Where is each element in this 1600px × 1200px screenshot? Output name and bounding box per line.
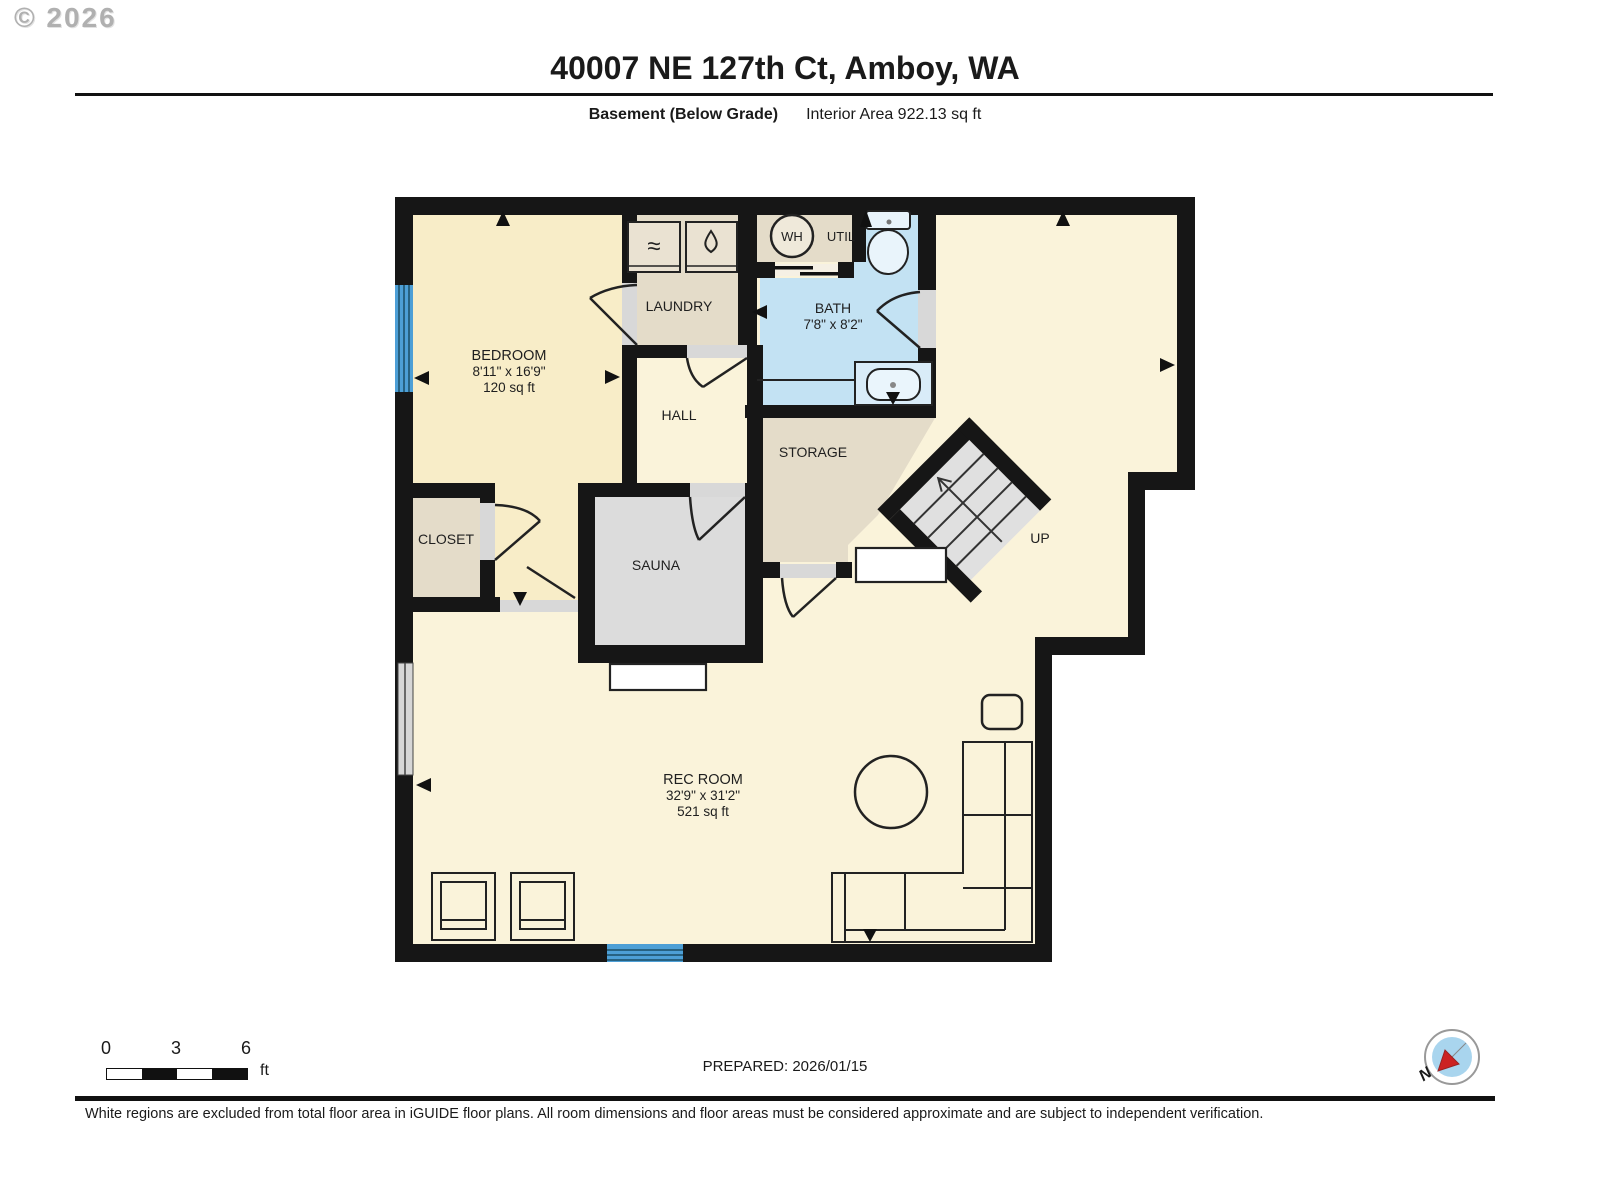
scale-tick-0: 0: [101, 1038, 111, 1059]
rec-room-dims: 32'9" x 31'2": [666, 788, 740, 803]
dryer-icon: [686, 222, 737, 272]
sauna-label: SAUNA: [632, 557, 681, 573]
washer-icon: ≈: [628, 222, 680, 272]
bedroom-dims: 8'11" x 16'9": [472, 364, 545, 379]
floor-plan-page: © 2026 40007 NE 127th Ct, Amboy, WA Base…: [0, 0, 1600, 1200]
closet-label: CLOSET: [418, 531, 474, 547]
bedroom-label: BEDROOM: [472, 348, 547, 364]
water-heater-label: WH: [781, 229, 803, 244]
bedroom-area: 120 sq ft: [483, 380, 535, 395]
bath-dims: 7'8" x 8'2": [803, 317, 862, 332]
stairs-up-label: UP: [1030, 530, 1049, 546]
svg-text:≈: ≈: [647, 233, 660, 260]
storage-cabinet: [856, 548, 946, 582]
footer-divider: [75, 1096, 1495, 1101]
scale-unit-label: ft: [260, 1062, 269, 1080]
hall-label: HALL: [661, 407, 696, 423]
laundry-label: LAUNDRY: [646, 298, 713, 314]
rec-room-area: 521 sq ft: [677, 804, 729, 819]
sauna-bench: [610, 664, 706, 690]
scale-bar: [106, 1068, 248, 1080]
closet-floor: [413, 498, 480, 597]
floor-plan-drawing: ≈: [0, 0, 1600, 1200]
storage-label: STORAGE: [779, 444, 847, 460]
rec-room-label: REC ROOM: [663, 772, 743, 788]
utility-label: UTIL: [827, 229, 855, 244]
scale-tick-6: 6: [241, 1038, 251, 1059]
toilet-icon: [866, 211, 910, 274]
bath-label: BATH: [815, 300, 851, 316]
scale-tick-3: 3: [171, 1038, 181, 1059]
prepared-date: PREPARED: 2026/01/15: [585, 1058, 985, 1075]
disclaimer-text: White regions are excluded from total fl…: [85, 1106, 1515, 1122]
room-fills: [413, 215, 1177, 944]
